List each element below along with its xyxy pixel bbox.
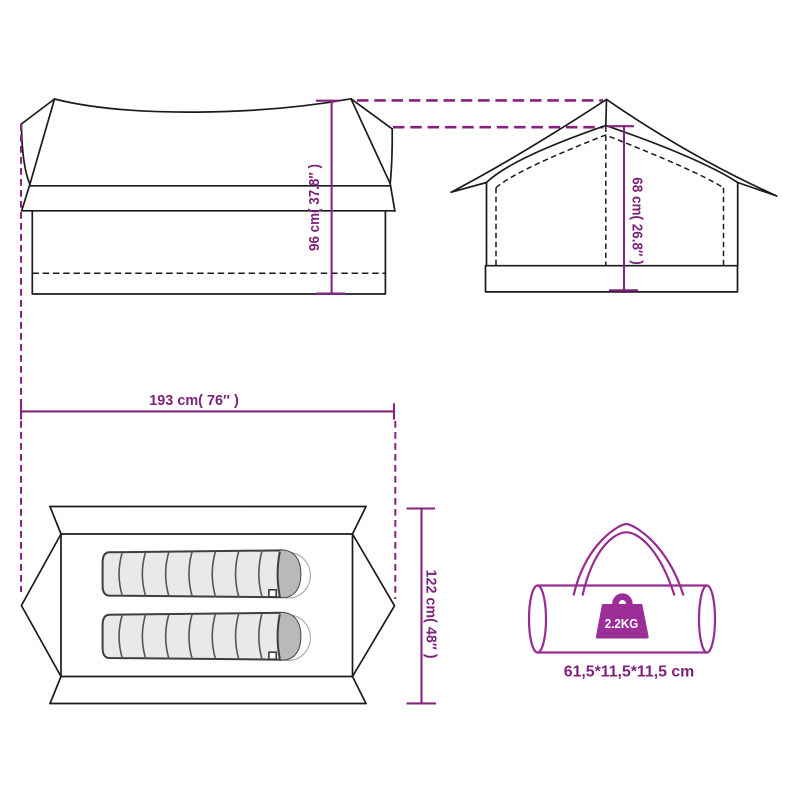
svg-text:61,5*11,5*11,5 cm: 61,5*11,5*11,5 cm xyxy=(564,664,695,681)
svg-text:122 cm( 48″ ): 122 cm( 48″ ) xyxy=(423,570,439,659)
svg-text:68 cm( 26.8″ ): 68 cm( 26.8″ ) xyxy=(629,177,645,265)
svg-text:2.2KG: 2.2KG xyxy=(605,616,639,631)
svg-text:193 cm( 76″ ): 193 cm( 76″ ) xyxy=(149,393,239,409)
svg-text:96 cm( 37.8″ ): 96 cm( 37.8″ ) xyxy=(307,164,323,251)
